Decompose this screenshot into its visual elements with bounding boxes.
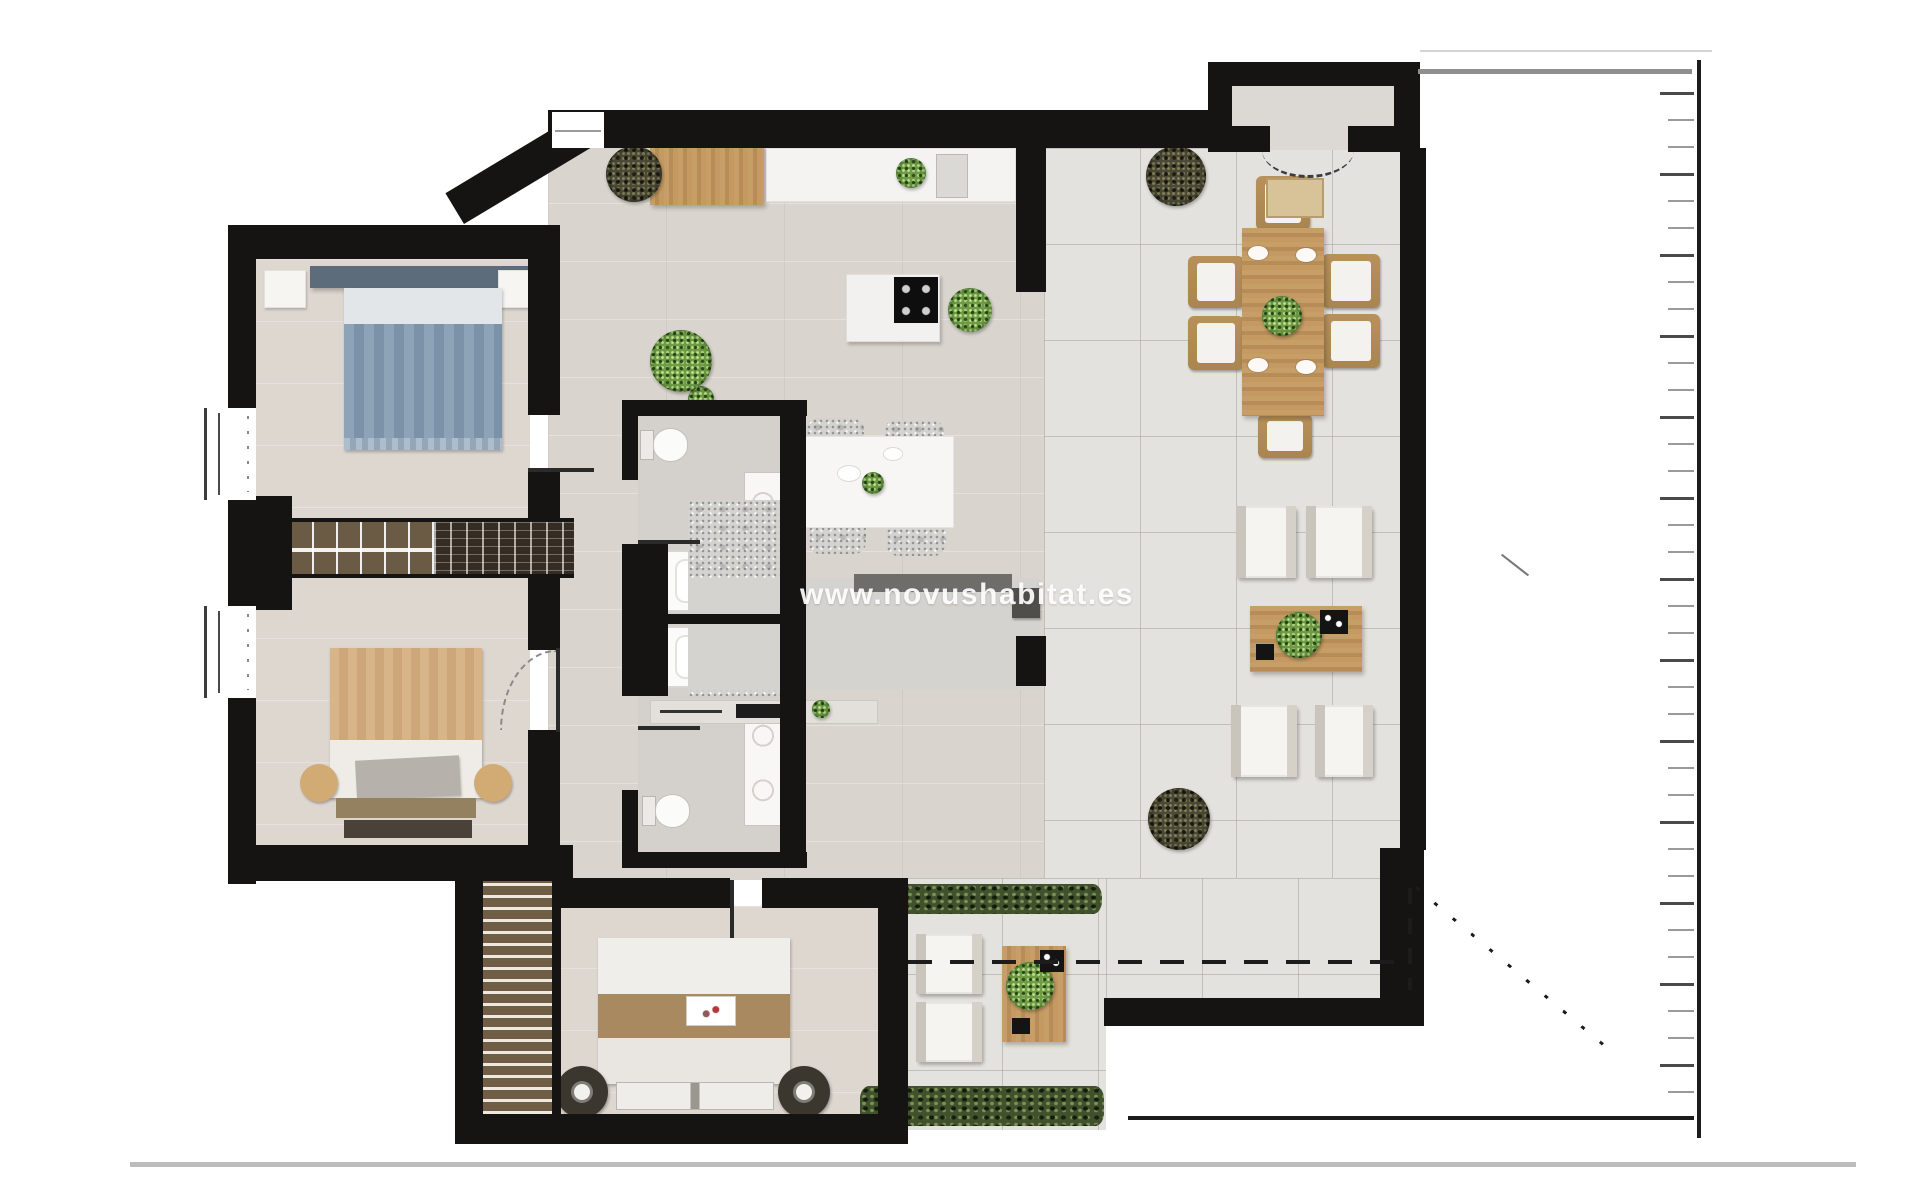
ruler-major-ticks [1660,92,1694,1132]
bottom-boundary-black-line [1128,1116,1694,1120]
dining-chair-right-2 [1322,314,1380,368]
wall-bath-left-b [622,790,638,854]
terrace-dashed-line [908,960,1408,964]
centerpiece-plant-icon [1262,296,1302,336]
watermark: www.novushabitat.es [800,578,1120,618]
outdoor-armchair-1 [916,934,982,994]
plate-icon [838,466,860,481]
wall-bedroom1-right-b [528,472,560,520]
bed2-pouf-right [474,764,512,802]
diagonal-tick-mark [1501,554,1529,577]
wall-bedroom1-right-a [528,225,560,415]
dining-chair-bottom [1258,414,1312,458]
kitchen-sideboard [650,145,764,205]
wall-terrace-pier [1016,636,1046,686]
dining-chair-right-1 [1322,254,1380,308]
console-plant-icon [812,700,830,718]
wall-vestibule-bottom-l [1208,126,1270,152]
wall-kitchen-right [1016,148,1046,292]
plate-icon [1296,360,1316,374]
table-plant-icon [862,472,884,494]
door-leaf-bedroom1 [528,468,594,472]
plate-icon [1248,246,1268,260]
terrace-plant-bottom-icon [1148,788,1210,850]
top-boundary-thin-line [1420,50,1712,52]
lounge-armchair-bl [1231,705,1297,777]
wall-master-right [878,878,908,1144]
wall-master-bottom [455,1114,908,1144]
wardrobe-left-section [288,518,434,578]
bed2-pouf-left [300,764,338,802]
console-arrow-line [660,710,722,713]
wall-bedroom2-bottom [228,845,573,881]
wall-se-corner [1380,848,1424,1003]
wall-vestibule-bottom-r [1348,126,1420,152]
coffee-table-plant-icon [1276,612,1322,658]
lounge-armchair-tl [1236,506,1296,578]
door-leaf-bedroom2 [556,648,560,732]
master-headboard [616,1082,774,1110]
bed2-headboard [336,798,476,818]
kitchen-counter [766,148,1016,202]
door-leaf-bathroom2 [638,726,700,730]
plate-icon [1296,248,1316,262]
dining-chair-left-1 [1188,256,1244,308]
floor-plan-canvas: www.novushabitat.es [0,0,1920,1200]
outdoor-armchair-2 [916,1002,982,1062]
lounge-armchair-br [1315,705,1373,777]
counter-plant-icon [896,158,926,188]
lounge-armchair-tr [1306,506,1372,578]
plate-icon [884,448,902,460]
tray-icon [1320,610,1348,634]
wall-bath-left-a [622,416,638,480]
wall-top-main [548,110,1210,148]
wall-right-main [1400,148,1426,850]
bed1-nightstand-left [264,270,306,308]
window-bay-1 [204,408,256,500]
doormat [1266,178,1324,218]
island-plant-icon [948,288,992,332]
wall-terrace-bottom [1104,998,1424,1026]
wall-left-pier [228,496,292,610]
wall-vestibule-top [1208,62,1420,86]
wall-left-upper [228,225,256,415]
plate-icon [1248,358,1268,372]
wall-stairs-left [455,848,483,1144]
hedge-top [890,884,1102,914]
bed2-bench [344,820,472,838]
master-bed-cushion [686,996,736,1026]
plot-dotted-diagonal [1415,886,1610,1050]
dining-chair-left-2 [1188,316,1244,370]
master-nightstand-right [778,1066,830,1118]
plot-dashed-vertical [1408,888,1412,990]
window-bay-2 [204,606,256,698]
terrace-plant-top-icon [1146,146,1206,206]
toilet-1 [640,428,688,462]
master-nightstand-left [556,1066,608,1118]
wardrobe-right-section [434,518,574,578]
top-boundary-gray-line [1418,69,1692,74]
bed1-blue-double-bed [344,288,502,450]
door-leaf-bathroom1 [638,540,700,544]
lower-terrace-floor-b [1106,878,1380,998]
bed2-throw-blanket [355,755,461,800]
cooktop-icon [894,277,938,323]
wall-living-bottom-a [556,878,730,908]
bottom-divider-line [130,1162,1856,1167]
toilet-2 [642,794,690,828]
stairs [483,850,555,1114]
wall-bedroom1-top [228,225,550,259]
wall-bath-divider [662,614,782,624]
decor-item-icon [1256,644,1274,660]
wall-bath-bottom [622,852,807,868]
kitchen-plant-icon [606,146,662,202]
wall-bedroom2-right-a [528,576,560,650]
counter-sink [936,154,968,198]
living-plant-icon [650,330,712,392]
window-top-wall [552,112,604,148]
dimension-ruler-line [1697,60,1701,1138]
wall-bath-right [780,400,806,868]
wall-bedroom2-right-b [528,730,560,848]
outdoor-item-icon [1012,1018,1030,1034]
door-leaf-master [730,880,734,938]
